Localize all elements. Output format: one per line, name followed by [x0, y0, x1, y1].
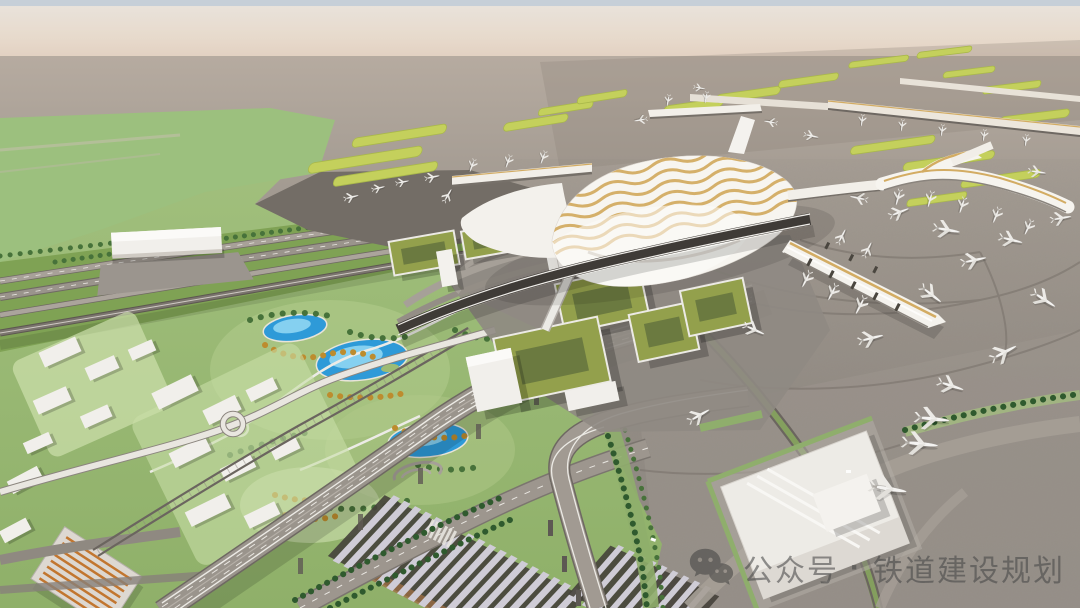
watermark: 公众号 · 铁道建设规划: [686, 543, 1065, 593]
vehicle: [846, 470, 851, 473]
wechat-icon: [686, 543, 736, 593]
watermark-account-type: 公众号: [743, 546, 839, 590]
airport-rendering: 公众号 · 铁道建设规划: [0, 0, 1080, 608]
watermark-separator: ·: [850, 551, 862, 585]
watermark-account-name: 铁道建设规划: [873, 546, 1065, 590]
sky-top-strip: [0, 0, 1080, 6]
rendered-scene: [0, 0, 1080, 608]
